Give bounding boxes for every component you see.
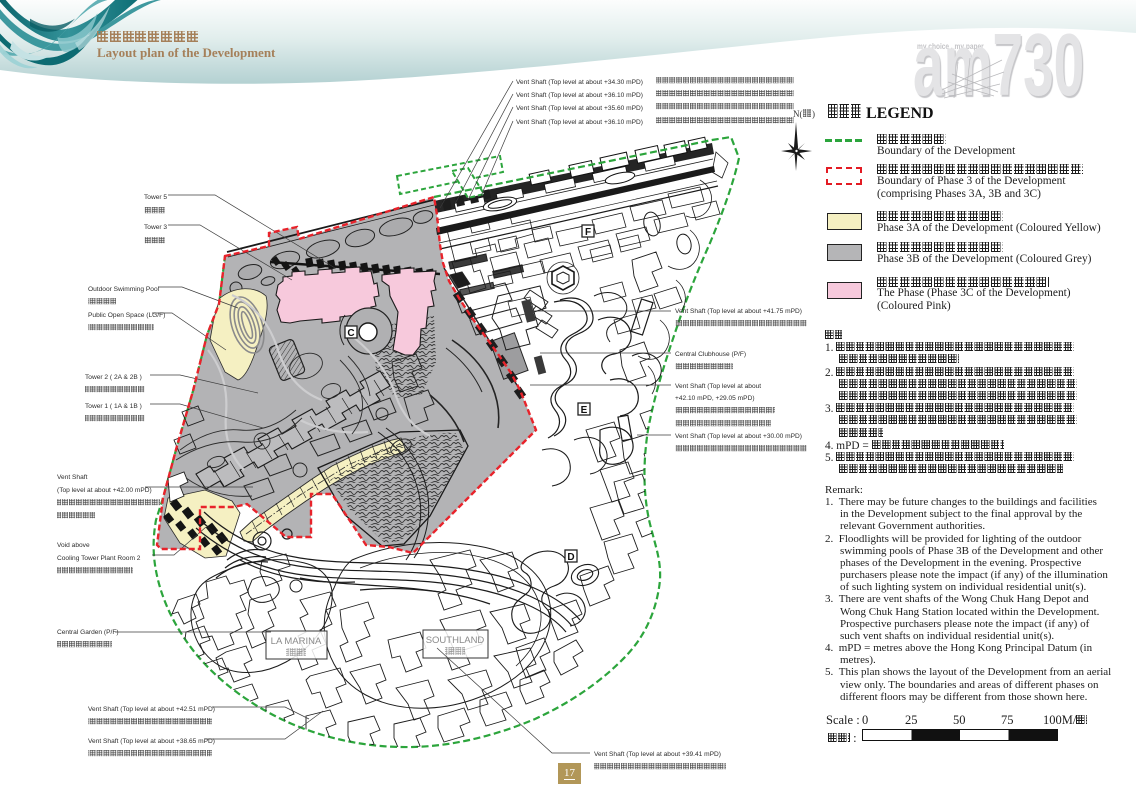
svg-text:LA MARINA: LA MARINA xyxy=(271,636,322,647)
svg-text:Vent Shaft (Top level at about: Vent Shaft (Top level at about +30.00 mP… xyxy=(675,433,802,440)
svg-text:Tower 2 ( 2A & 2B ): Tower 2 ( 2A & 2B ) xyxy=(85,374,142,381)
svg-text:Vent Shaft: Vent Shaft xyxy=(57,474,88,481)
svg-text:Vent Shaft (Top level at about: Vent Shaft (Top level at about +36.10 mP… xyxy=(516,119,643,126)
svg-text:Vent Shaft (Top level at about: Vent Shaft (Top level at about +42.51 mP… xyxy=(88,706,215,713)
svg-text:Central Garden (P/F): Central Garden (P/F) xyxy=(57,629,119,636)
svg-text:Vent Shaft (Top level at about: Vent Shaft (Top level at about +41.75 mP… xyxy=(675,308,802,315)
svg-text:): ) xyxy=(812,109,815,119)
svg-text:SOUTHLAND: SOUTHLAND xyxy=(426,635,485,646)
svg-text:Vent Shaft (Top level at about: Vent Shaft (Top level at about xyxy=(675,383,761,390)
svg-text:N(: N( xyxy=(793,109,803,119)
svg-text:Vent Shaft (Top level at about: Vent Shaft (Top level at about +39.41 mP… xyxy=(594,751,721,758)
svg-text:Vent Shaft (Top level at about: Vent Shaft (Top level at about +38.65 mP… xyxy=(88,738,215,745)
svg-text:Outdoor Swimming Pool: Outdoor Swimming Pool xyxy=(88,286,160,293)
svg-text:Cooling Tower Plant Room 2: Cooling Tower Plant Room 2 xyxy=(57,555,141,562)
svg-text:Central Clubhouse (P/F): Central Clubhouse (P/F) xyxy=(675,351,746,358)
svg-text:+42.10 mPD, +29.05 mPD): +42.10 mPD, +29.05 mPD) xyxy=(675,395,755,402)
svg-text:Tower 5: Tower 5 xyxy=(144,194,167,201)
svg-text:F: F xyxy=(585,227,591,238)
svg-text:Tower 3: Tower 3 xyxy=(144,224,167,231)
svg-text:Vent Shaft (Top level at about: Vent Shaft (Top level at about +35.60 mP… xyxy=(516,105,643,112)
svg-text:Void above: Void above xyxy=(57,542,90,549)
svg-text:Vent Shaft (Top level at about: Vent Shaft (Top level at about +36.10 mP… xyxy=(516,92,643,99)
svg-text:E: E xyxy=(581,405,588,416)
svg-text:Vent Shaft (Top level at about: Vent Shaft (Top level at about +34.30 mP… xyxy=(516,79,643,86)
svg-text:(Top level at about +42.00 mPD: (Top level at about +42.00 mPD) xyxy=(57,487,152,494)
svg-text:C: C xyxy=(347,328,354,339)
svg-text:Tower 1 ( 1A & 1B ): Tower 1 ( 1A & 1B ) xyxy=(85,403,142,410)
svg-text:D: D xyxy=(567,552,574,563)
svg-text:Public Open Space (LG/F): Public Open Space (LG/F) xyxy=(88,312,165,319)
